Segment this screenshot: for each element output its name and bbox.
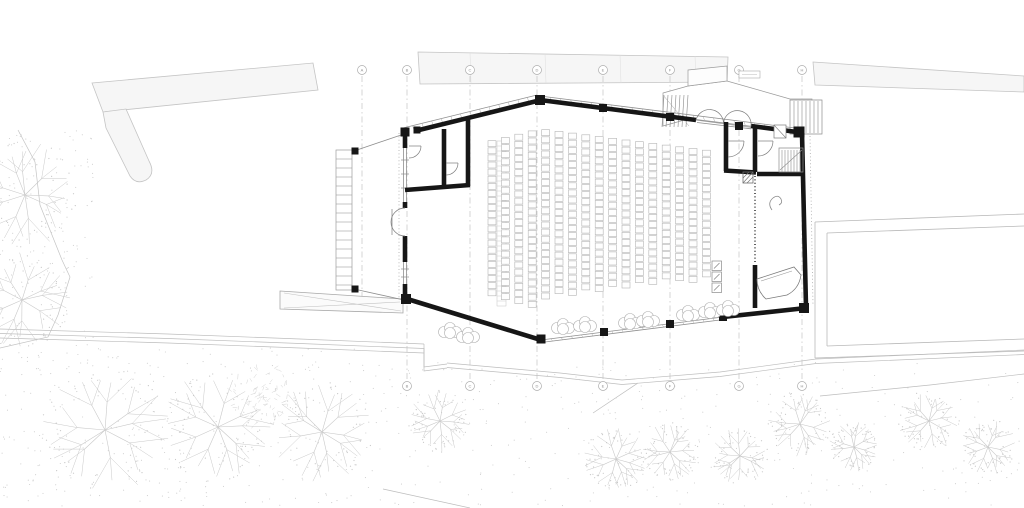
stipple-dot [73,245,74,246]
stipple-dot [615,412,616,413]
seat [542,265,550,271]
stipple-dot [262,501,263,502]
stipple-dot [659,411,660,412]
tree-twig [430,431,431,444]
tree-twig [974,431,979,438]
stipple-dot [30,393,31,394]
stipple-dot [490,384,491,385]
tree-twig [16,151,26,173]
stipple-dot [33,250,34,251]
seat [595,222,603,228]
tree-foliage-dot [684,460,685,461]
tree-foliage-dot [865,456,866,457]
scribble-stroke [254,390,257,394]
shrub-lobe [723,306,734,317]
seat [595,186,603,192]
seat [501,138,509,144]
tree-foliage-dot [1000,463,1001,464]
tree-twig [651,443,658,452]
seat [568,183,576,189]
stipple-dot [718,503,719,504]
seat [689,227,697,233]
tree-foliage-dot [295,407,296,408]
seat [528,202,536,208]
seat [515,212,523,218]
stipple-dot [24,391,25,392]
tree-twig [12,218,28,244]
scribble-stroke [254,403,256,407]
tree-foliage-dot [737,432,738,433]
tree-foliage-dot [678,472,679,473]
stipple-dot [974,417,975,418]
tree-twig [1000,449,1008,460]
stipple-dot [258,443,259,444]
tree-twig [863,442,876,444]
tree-foliage-dot [672,422,673,423]
stipple-dot [0,198,1,199]
tree-foliage-dot [716,463,717,464]
stipple-dot [603,414,604,415]
stipple-dot [907,387,908,388]
stipple-dot [413,502,414,503]
seat [515,227,523,233]
seat [542,187,550,193]
seat [501,152,509,158]
tree-foliage-dot [982,469,983,470]
tree-foliage-dot [617,440,618,441]
stipple-dot [874,375,875,376]
tree-twig [850,429,855,436]
tree-branch [917,415,929,421]
seat [702,172,710,178]
seat [542,158,550,164]
stipple-dot [318,367,319,368]
tree-branch [434,409,440,421]
stipple-dot [236,438,237,439]
tree-foliage-dot [918,398,919,399]
stipple-dot [842,388,843,389]
tree-foliage-dot [767,449,768,450]
tree-foliage-dot [41,267,42,268]
seat [635,277,643,283]
stipple-dot [116,357,117,358]
tree-foliage-dot [820,408,821,409]
tree-foliage-dot [847,424,848,425]
stipple-dot [786,496,787,497]
tree-branch [25,195,46,205]
tree-foliage-dot [815,400,816,401]
seat [622,190,630,196]
tree-foliage-dot [589,459,590,460]
scribble-stroke [250,378,252,381]
seat [528,273,536,279]
seat [501,251,509,257]
branch-tree [963,420,1015,474]
stipple-dot [139,469,140,470]
tree-branch [603,459,616,465]
tree-foliage-dot [1011,458,1012,459]
stipple-dot [346,498,347,499]
seat [595,236,603,242]
seat [488,205,496,211]
seat [676,253,684,259]
tree-foliage-dot [798,403,799,404]
tree-branch [800,424,804,437]
stipple-dot [261,419,262,420]
tree-foliage-dot [455,427,456,428]
seat [689,149,697,155]
tree-foliage-dot [317,469,318,470]
stipple-dot [826,490,827,491]
door-swing [391,208,405,222]
stipple-dot [679,504,680,505]
tree-foliage-dot [353,460,354,461]
tree-foliage-dot [833,458,834,459]
stipple-dot [363,370,364,371]
seat [501,201,509,207]
stipple-dot [245,502,246,503]
tree-foliage-dot [34,230,35,231]
stipple-dot [341,459,342,460]
tree-twig [169,402,196,417]
tree-foliage-dot [136,461,137,462]
seat [635,234,643,240]
seat [582,185,590,191]
tree-foliage-dot [942,412,943,413]
seat [676,218,684,224]
seat [555,195,563,201]
tree-foliage-dot [48,214,49,215]
seat [595,286,603,292]
stipple-dot [224,446,225,447]
tree-foliage-dot [917,438,918,439]
tree-twig [414,426,427,430]
seat [662,166,670,172]
tree-foliage-dot [791,393,792,394]
stipple-dot [225,366,226,367]
door-swing [409,146,421,158]
seat [595,215,603,221]
seat [488,190,496,196]
tree-foliage-dot [963,460,964,461]
tree-twig [838,434,843,444]
tree-foliage-dot [920,449,921,450]
seat [635,206,643,212]
tree-foliage-dot [931,404,932,405]
tree-twig [20,253,29,281]
tree-foliage-dot [459,431,460,432]
left-annex-ramp [336,150,352,290]
seat [649,193,657,199]
seat [662,159,670,165]
tree-foliage-dot [297,419,298,420]
stipple-dot [206,492,207,493]
scribble-stroke [270,405,271,408]
tree-foliage-dot [45,335,46,336]
stipple-dot [770,394,771,395]
tree-branch [613,459,617,473]
stipple-dot [561,397,562,398]
tree-foliage-dot [965,450,966,451]
stipple-dot [257,443,258,444]
stipple-dot [275,388,276,389]
stipple-dot [3,437,4,438]
seat [568,176,576,182]
tree-branch [218,426,242,427]
building-walls [352,95,810,344]
tree-foliage-dot [742,471,743,472]
tree-foliage-dot [597,475,598,476]
seat [622,225,630,231]
stipple-dot [0,343,1,344]
scribble-stroke [270,380,272,383]
branch-tree [0,253,70,347]
tree-foliage-dot [870,462,871,463]
stipple-dot [248,451,249,452]
tree-foliage-dot [136,481,137,482]
tree-twig [840,426,851,437]
tree-foliage-dot [665,469,666,470]
seat [528,223,536,229]
stipple-dot [332,410,333,411]
seat [542,229,550,235]
tree-foliage-dot [40,277,41,278]
tree-foliage-dot [791,448,792,449]
seat [635,184,643,190]
stipple-dot [136,456,137,457]
stipple-dot [51,232,52,233]
tree-twig [932,401,944,408]
stipple-dot [292,408,293,409]
seat [635,170,643,176]
seat [515,148,523,154]
tree-foliage-dot [871,434,872,435]
stipple-dot [244,458,245,459]
terrain-path [424,344,447,367]
stipple-dot [1018,463,1019,464]
stipple-dot [552,385,553,386]
seat [676,175,684,181]
seat [595,208,603,214]
stipple-dot [825,437,826,438]
seat [515,170,523,176]
stipple-dot [874,423,875,424]
seat [501,187,509,193]
tree-foliage-dot [772,426,773,427]
stipple-dot [836,409,837,410]
tree-twig [805,405,819,411]
stipple-dot [227,377,228,378]
seat [635,262,643,268]
scribble-stroke [266,387,269,389]
seat [609,181,617,187]
seat [568,162,576,168]
stipple-dot [0,254,1,255]
stipple-dot [88,166,89,167]
stipple-dot [40,450,41,451]
tree-twig [629,453,646,458]
stipple-dot [710,427,711,428]
tree-foliage-dot [797,447,798,448]
stipple-dot [0,371,1,372]
stipple-dot [555,383,556,384]
retaining-wall-top-left [92,63,318,112]
stipple-dot [122,393,123,394]
stipple-dot [1010,399,1011,400]
stipple-dot [790,396,791,397]
seat [622,275,630,281]
seat [515,177,523,183]
tree-branch [854,442,863,448]
stipple-dot [28,500,29,501]
tree-foliage-dot [718,459,719,460]
stipple-dot [576,367,577,368]
stipple-dot [653,377,654,378]
tree-foliage-dot [130,455,131,456]
stipple-dot [621,435,622,436]
column-block [666,320,674,328]
stipple-dot [308,367,309,368]
tree-foliage-dot [177,404,178,405]
tree-branch [844,444,854,447]
stipple-dot [625,375,626,376]
seat-row-column [662,145,670,279]
seat [689,241,697,247]
tree-foliage-dot [448,440,449,441]
tree-foliage-dot [60,430,61,431]
tree-foliage-dot [770,411,771,412]
tree-foliage-dot [241,383,242,384]
tree-foliage-dot [1009,455,1010,456]
stipple-dot [295,411,296,412]
tree-foliage-dot [825,417,826,418]
stipple-dot [8,202,9,203]
stipple-dot [808,491,809,492]
tree-branch [218,404,224,428]
tree-twig [988,458,993,468]
tree-branch [3,195,25,202]
tree-foliage-dot [657,475,658,476]
tree-twig [242,426,264,444]
stipple-dot [85,286,86,287]
seat [582,170,590,176]
tree-foliage-dot [929,399,930,400]
tree-twig [652,439,663,442]
tree-twig [679,461,695,463]
tree-foliage-dot [999,457,1000,458]
tree-foliage-dot [465,414,466,415]
stipple-dot [578,402,579,403]
stipple-dot [590,500,591,501]
tree-branch [730,456,740,463]
stipple-dot [24,431,25,432]
stipple-dot [687,429,688,430]
door-swing [758,141,773,156]
tree-twig [282,404,304,420]
tree-twig [655,463,663,474]
tree-branch [16,195,25,217]
tree-foliage-dot [853,427,854,428]
tree-twig [42,292,67,295]
tree-twig [327,453,329,471]
tree-twig [224,380,233,403]
tree-foliage-dot [52,287,53,288]
tree-foliage-dot [262,413,263,414]
seat [568,289,576,295]
tree-foliage-dot [188,398,189,399]
stipple-dot [186,482,187,483]
tree-foliage-dot [5,277,6,278]
seat [501,258,509,264]
stipple-dot [302,355,303,356]
tree-foliage-dot [838,432,839,433]
tree-foliage-dot [179,450,180,451]
tree-foliage-dot [628,470,629,471]
branch-tree [898,393,960,450]
stipple-dot [308,349,309,350]
tree-foliage-dot [451,402,452,403]
tree-branch [440,415,452,421]
scribble-stroke [285,381,286,386]
tree-foliage-dot [46,440,47,441]
tree-foliage-dot [931,400,932,401]
stipple-dot [519,458,520,459]
tree-foliage-dot [839,452,840,453]
tree-foliage-dot [784,396,785,397]
stipple-dot [12,298,13,299]
seat [609,259,617,265]
stipple-dot [198,390,199,391]
stipple-dot [17,142,18,143]
tree-twig [652,463,663,465]
stipple-dot [92,365,93,366]
tree-twig [340,443,357,456]
seat [662,216,670,222]
tree-foliage-dot [947,419,948,420]
stipple-dot [308,397,309,398]
branch-tree [641,422,698,480]
shrub [637,312,660,328]
stipple-dot [331,389,332,390]
tree-foliage-dot [131,387,132,388]
seat [542,201,550,207]
tree-twig [343,435,361,440]
stipple-dot [835,382,836,383]
ramp-ladder-frame [336,150,352,290]
tree-twig [965,446,977,451]
tree-foliage-dot [23,270,24,271]
tree-branch [196,427,218,437]
seat [555,160,563,166]
stipple-dot [164,468,165,469]
seat [568,197,576,203]
tree-twig [739,432,748,444]
stipple-dot [525,396,526,397]
seat [595,243,603,249]
seat [515,184,523,190]
tree-twig [338,393,342,417]
stipple-dot [885,416,886,417]
tree-foliage-dot [688,444,689,445]
tree-foliage-dot [145,401,146,402]
stipple-dot [6,485,7,486]
stipple-dot [768,404,769,405]
tree-foliage-dot [312,388,313,389]
tree-foliage-dot [970,454,971,455]
tree-foliage-dot [688,446,689,447]
tree-twig [48,181,67,196]
stipple-dot [965,491,966,492]
